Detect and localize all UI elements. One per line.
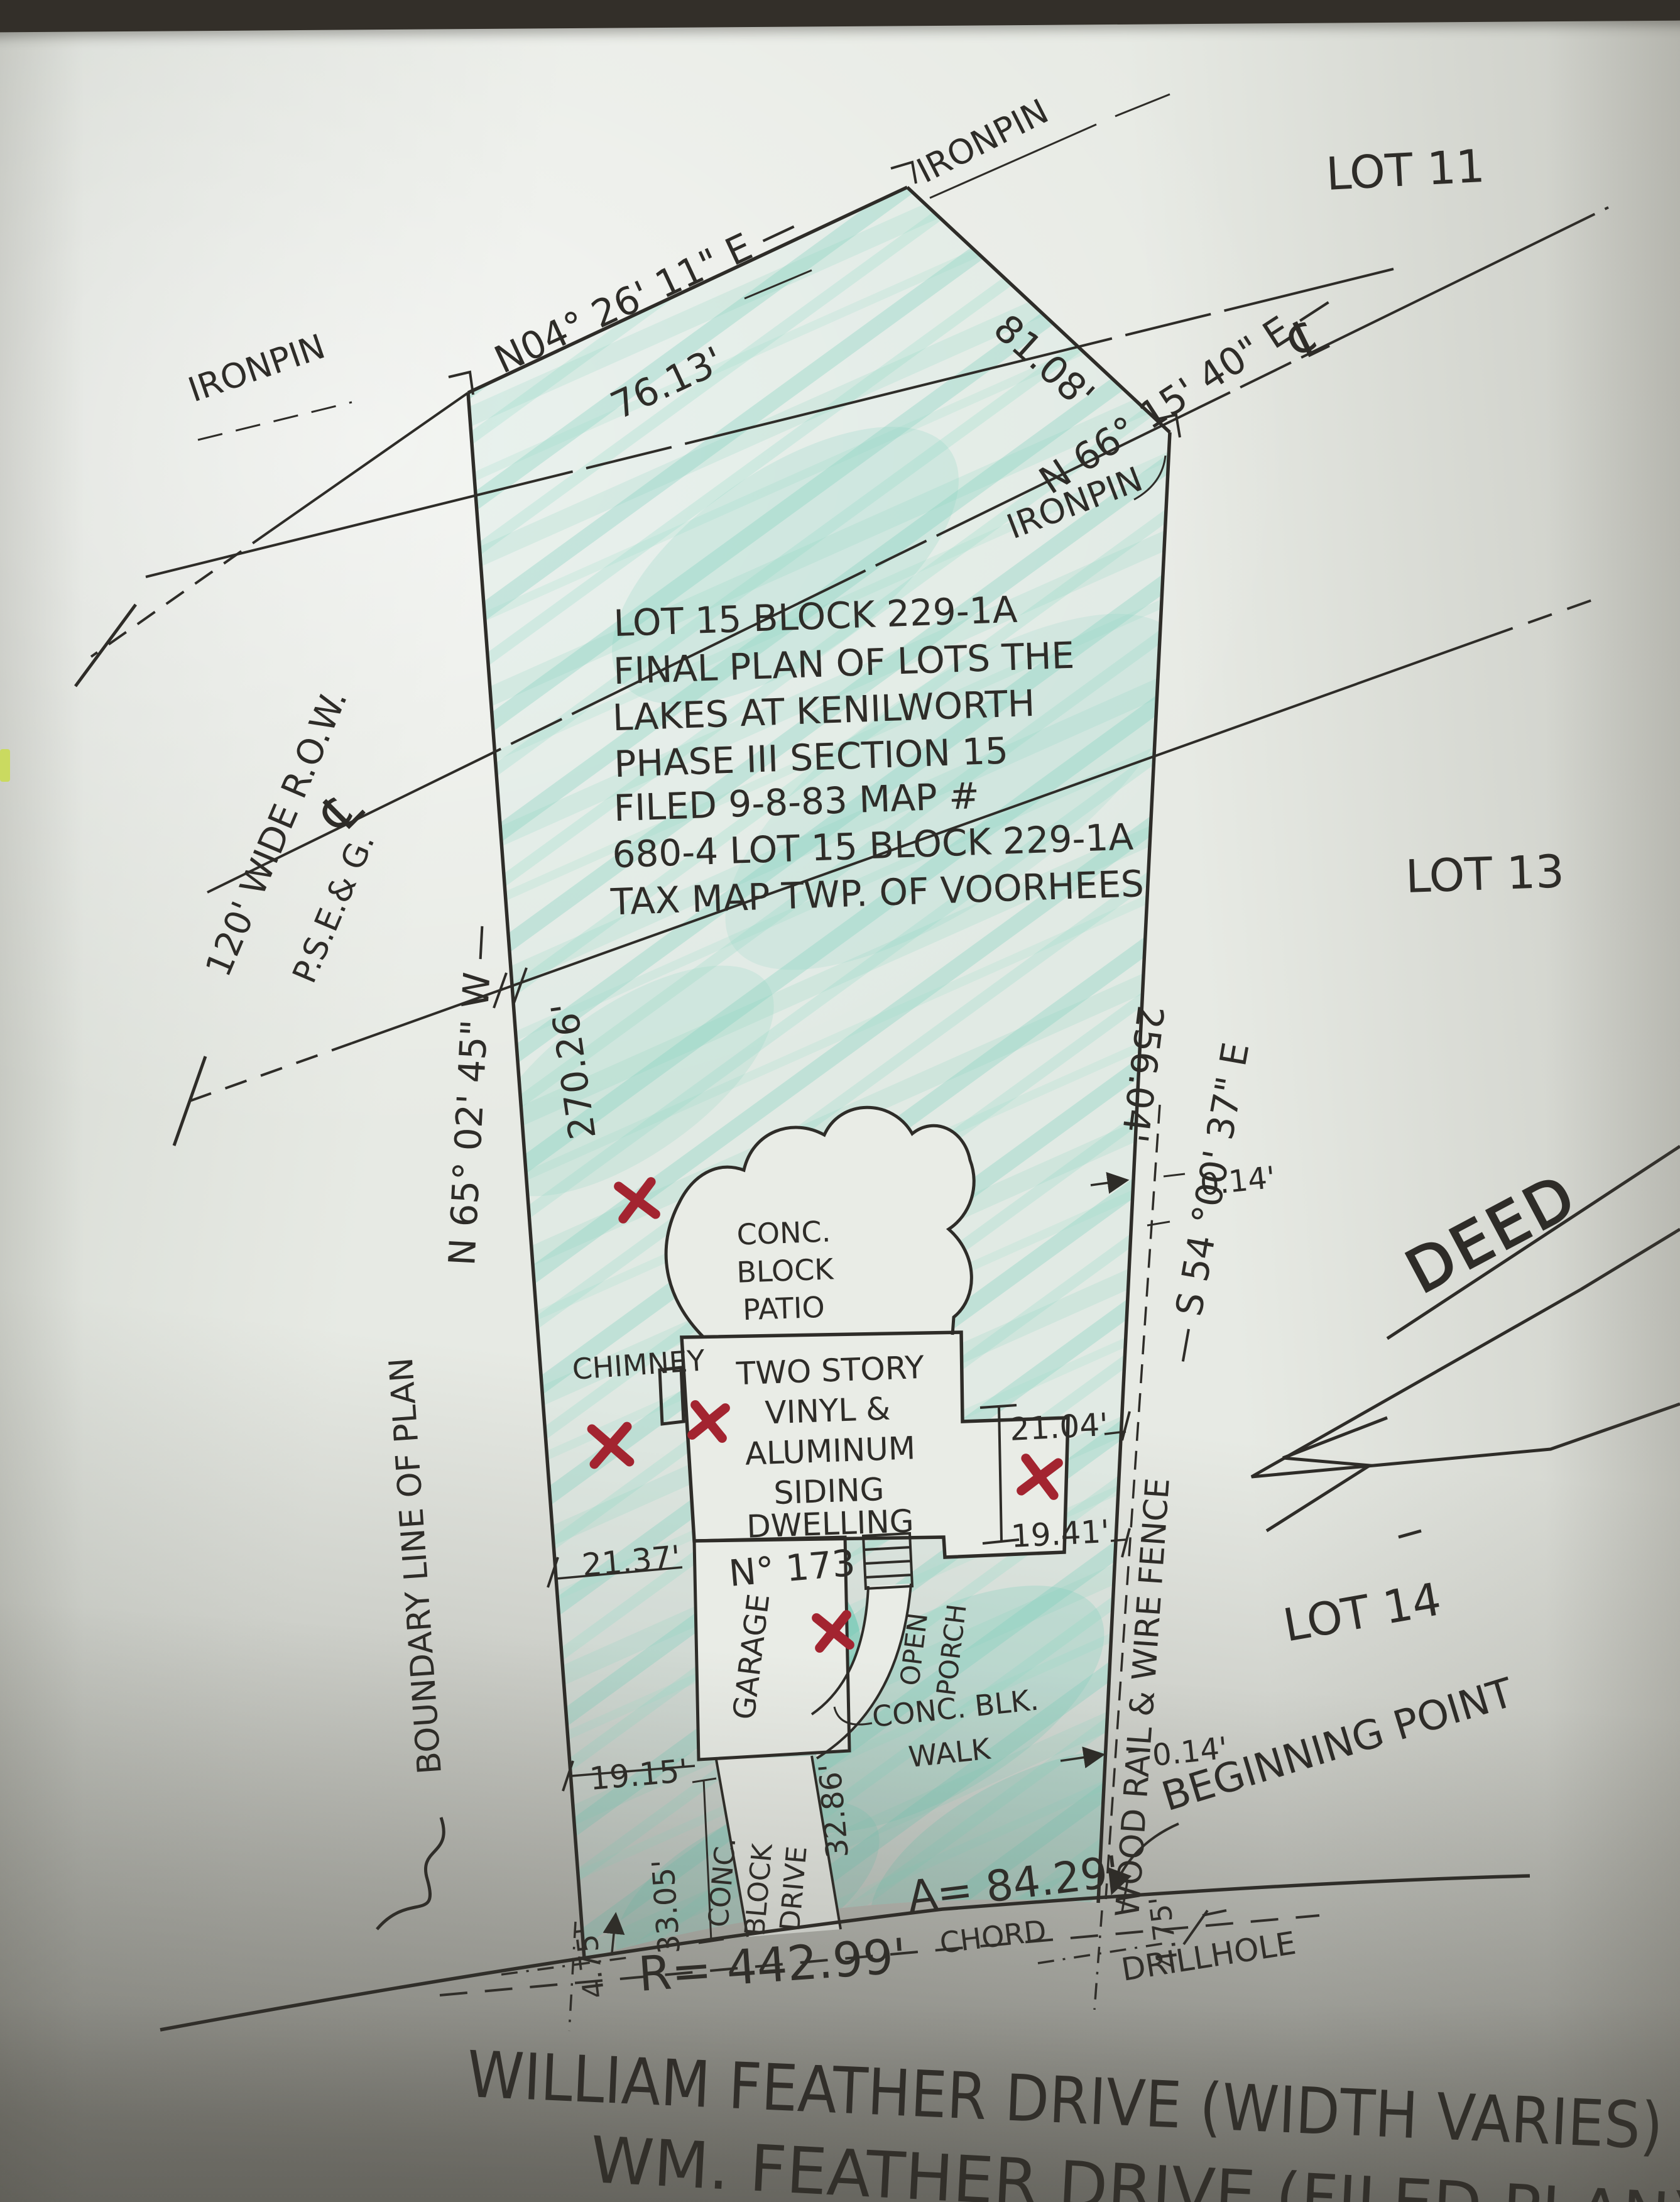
dim-wing-upper-label: 21.04' [1009, 1406, 1110, 1448]
patio-label-line: PATIO [742, 1290, 825, 1327]
row-terminator-bar-upper [75, 605, 136, 686]
patio-label: CONC. BLOCK PATIO [736, 1214, 836, 1327]
lot14-label: LOT 14 [1279, 1572, 1444, 1652]
survey-sketch-page: IRONPIN IRONPIN IRONPIN LOT 11 LOT 13 LO… [0, 0, 1680, 2202]
pin-extension-line [270, 393, 468, 531]
boundary-match-squiggle [377, 1817, 444, 1929]
dwelling-label: TWO STORY VINYL & ALUMINUM SIDING DWELLI… [735, 1349, 925, 1545]
boundary-line-label: BOUNDARY LINE OF PLAN [383, 1356, 449, 1775]
pin-extension-dash [91, 531, 270, 657]
dwelling-label-line: TWO STORY [735, 1349, 925, 1392]
patio-label-line: CONC. [736, 1214, 831, 1251]
drill-hole-label: DRILLHOLE [1119, 1925, 1299, 1988]
east-bearing-label: — S 54 °00' 37" E [1159, 1039, 1258, 1367]
deed-arrow-shaft-lower [1581, 1229, 1680, 1290]
ironpin-left-leaderline [198, 402, 352, 440]
dim-1941-line [1111, 1540, 1126, 1541]
deed-arrow [1252, 1146, 1680, 1537]
dwelling-label-line: VINYL & [765, 1391, 892, 1432]
chord-label: CHORD [938, 1914, 1049, 1960]
dim-wing-lower-label: 19.41' [1010, 1513, 1111, 1555]
row-terminator-bar-lower [174, 1056, 205, 1146]
lot11-label: LOT 11 [1324, 140, 1486, 200]
break-zigzag [1267, 1418, 1421, 1537]
ironpin-left-label: IRONPIN [183, 326, 330, 410]
lot13-label: LOT 13 [1405, 845, 1565, 903]
plot-plan-drawing: IRONPIN IRONPIN IRONPIN LOT 11 LOT 13 LO… [0, 0, 1680, 2202]
fence-offset-upper-label: 0.14' [1198, 1160, 1277, 1203]
dwelling-label-line: ALUMINUM [745, 1430, 916, 1472]
pin-hook-top [891, 162, 916, 183]
highlighter-mark [0, 749, 10, 782]
dwelling-label-line: DWELLING [746, 1503, 914, 1545]
row-edge-lower-dash-right [1489, 597, 1601, 637]
row-utility-label: P.S.E.& G. [286, 828, 383, 989]
ironpin-top-label: IRONPIN [910, 91, 1054, 190]
deed-arrowhead [1252, 1290, 1680, 1477]
row-edge-lower-dash-left [190, 1043, 352, 1101]
patio-label-line: BLOCK [736, 1252, 836, 1289]
deed-label: DEED [1395, 1161, 1589, 1307]
ironpin-top-dash [1115, 94, 1170, 116]
west-bearing-label: N 65° 02' 45" W — [440, 923, 501, 1267]
dim-drive-left-label: 33.05' [646, 1858, 687, 1955]
